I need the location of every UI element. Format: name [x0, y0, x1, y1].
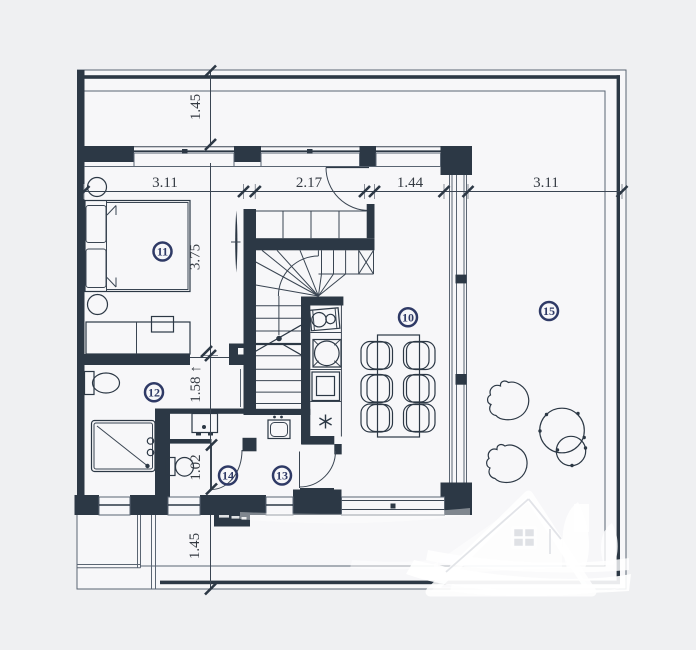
svg-text:3.11: 3.11 [152, 175, 178, 191]
svg-text:12: 12 [148, 386, 160, 400]
svg-text:11: 11 [157, 245, 168, 259]
svg-text:1.45: 1.45 [187, 533, 203, 559]
svg-text:14: 14 [222, 469, 234, 483]
svg-text:15: 15 [543, 304, 555, 318]
svg-text:1.45: 1.45 [188, 94, 204, 120]
svg-text:3.11: 3.11 [533, 175, 559, 191]
svg-text:13: 13 [276, 469, 288, 483]
svg-text:2.17: 2.17 [296, 175, 323, 191]
svg-text:10: 10 [402, 311, 414, 325]
svg-text:3.75: 3.75 [188, 244, 204, 270]
svg-text:1.58 ↑: 1.58 ↑ [188, 365, 204, 403]
svg-text:1.02: 1.02 [188, 454, 204, 480]
svg-text:1.44: 1.44 [397, 175, 424, 191]
